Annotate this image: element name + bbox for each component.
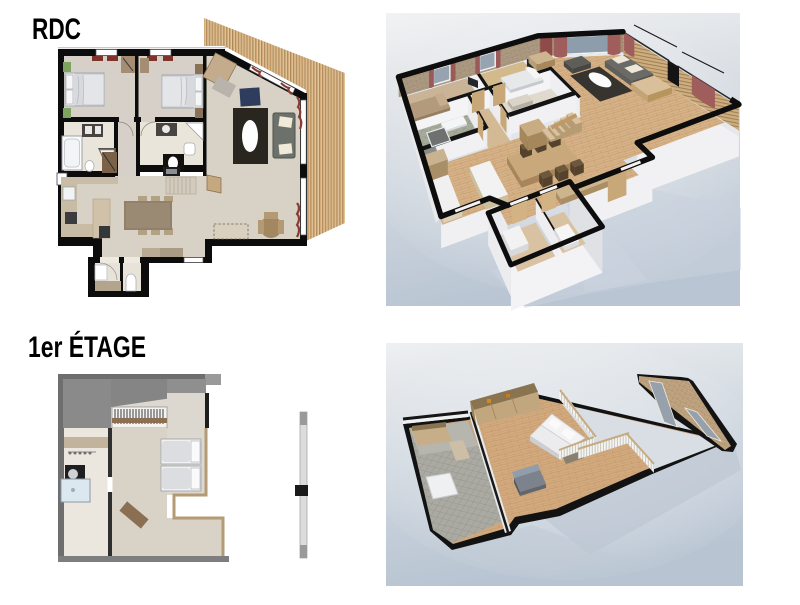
svg-text:1er ÉTAGE: 1er ÉTAGE bbox=[28, 330, 146, 364]
svg-text:RDC: RDC bbox=[32, 13, 81, 46]
